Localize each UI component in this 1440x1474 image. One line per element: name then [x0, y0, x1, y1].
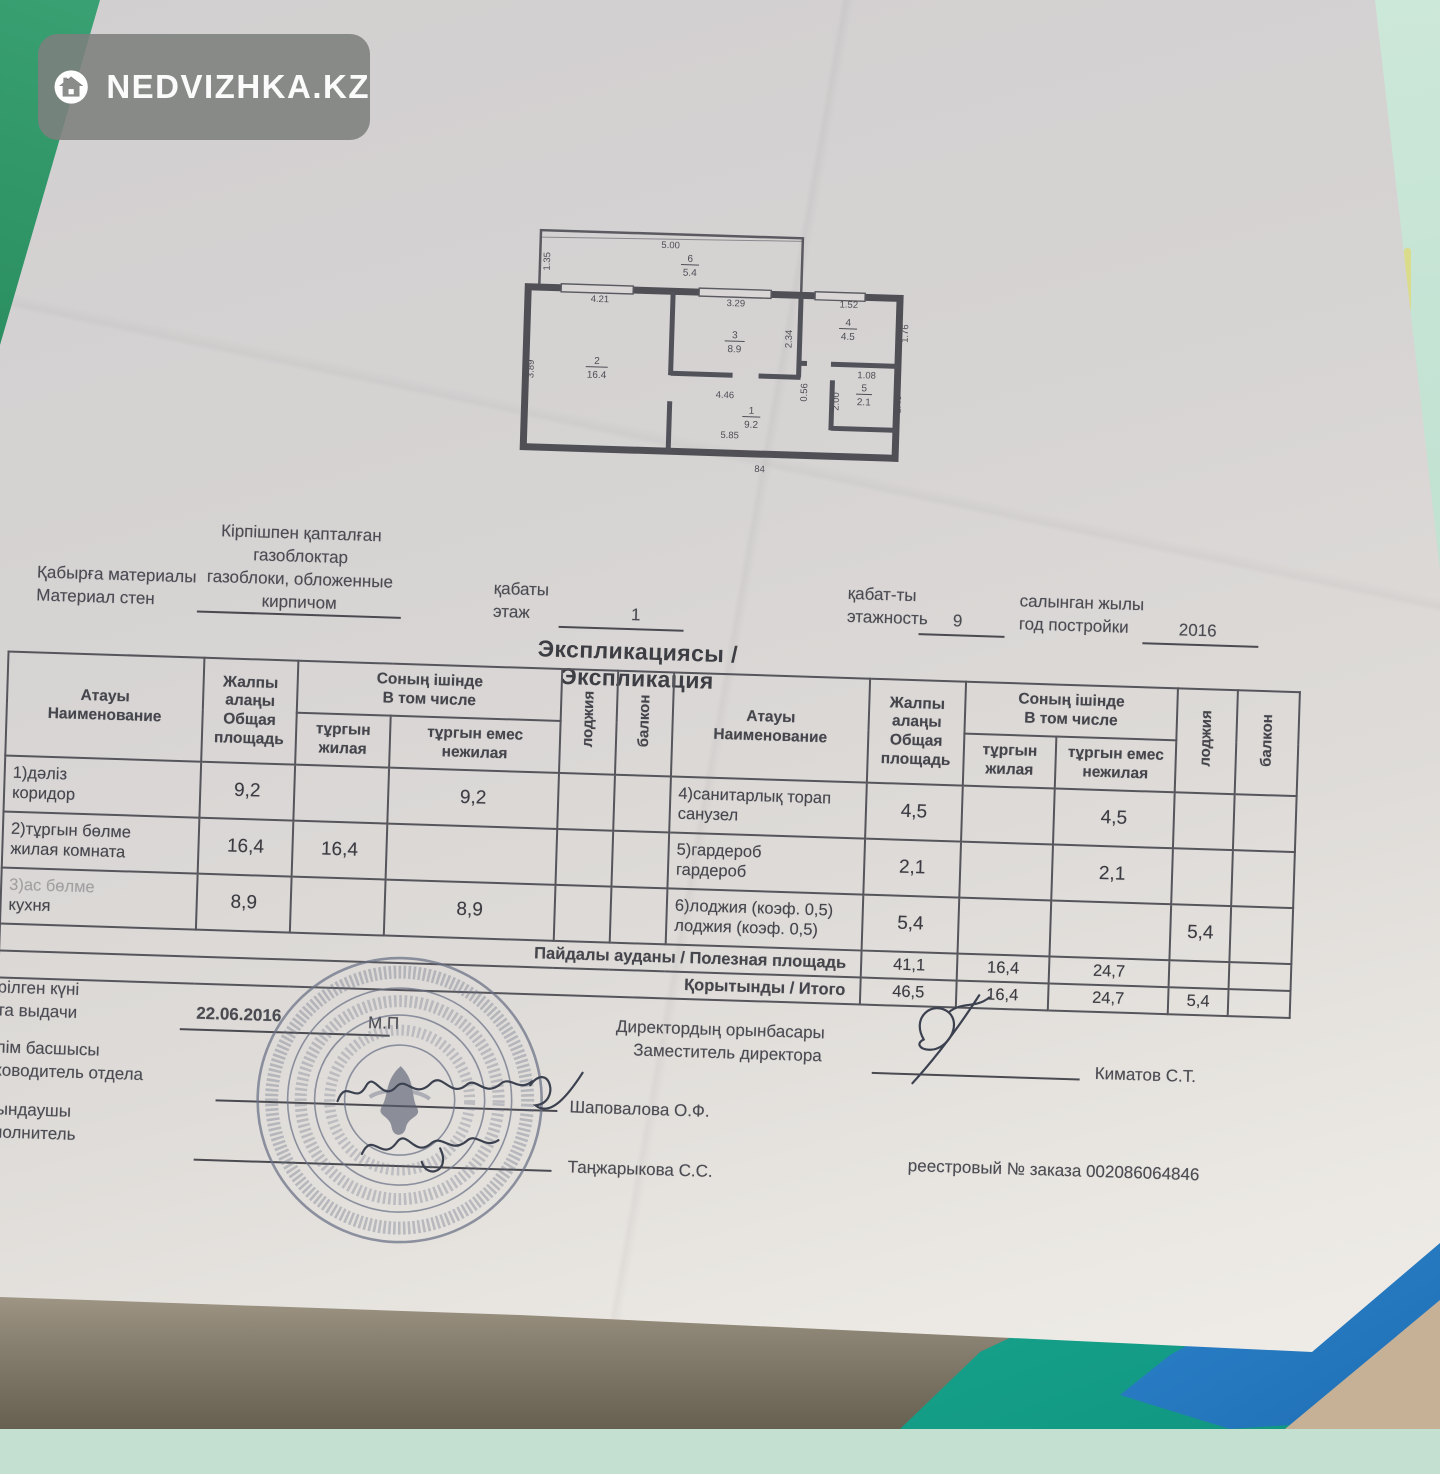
- cell-living: [958, 898, 1052, 957]
- header-living-kk: тұргын: [969, 741, 1052, 762]
- floors-label-ru: этажность: [847, 606, 928, 631]
- dim-200: 2.00: [831, 392, 843, 411]
- dim-room4-depth: 1.76: [900, 324, 912, 343]
- wall-material-value: Кірпішпен қапталған газоблоктар газоблок…: [193, 519, 408, 617]
- room-name-cell: 5)гардероб гардероб: [667, 832, 865, 894]
- executor-label: Орындаушы Исполнитель: [0, 1098, 77, 1147]
- header-loggia: лоджия: [1197, 710, 1217, 767]
- col-header-total-right: Жалпы алаңы Общая площадь: [867, 679, 966, 786]
- executor-label-ru: Исполнитель: [0, 1121, 76, 1147]
- registry-number: реестровый № заказа 002086064846: [907, 1155, 1199, 1187]
- cell-loggia: [557, 773, 615, 831]
- cell-living: [293, 765, 389, 824]
- dim-hall-length: 5.85: [720, 430, 739, 442]
- year-label: салынган жылы год постройки: [1019, 590, 1145, 640]
- dim-door-mark: 84: [754, 464, 765, 475]
- header-balcony: балкон: [635, 694, 655, 747]
- cell-total: 2,1: [863, 839, 961, 898]
- cell-loggia: 5,4: [1169, 904, 1231, 962]
- room2-area: 16.4: [587, 370, 607, 382]
- col-header-living-right: тұргын жилая: [963, 734, 1057, 789]
- floor-label-ru: этаж: [493, 601, 549, 626]
- cell-balcony: [1233, 794, 1297, 852]
- floor-label: қабаты этаж: [493, 578, 550, 626]
- cell-total: 8,9: [196, 874, 292, 933]
- cell-balcony: [613, 775, 671, 833]
- explication-table: Атауы Наименование Жалпы алаңы Общая пло…: [0, 651, 1301, 1019]
- col-header-incl-right: Соның ішінде В том числе: [964, 682, 1178, 741]
- cell-total: 4,5: [865, 783, 963, 842]
- cell-loggia: [1171, 848, 1233, 906]
- cell-living: [961, 786, 1055, 845]
- dim-room3-width: 3.29: [726, 298, 745, 310]
- deputy-label: Директордың орынбасары Заместитель дирек…: [615, 1016, 825, 1068]
- cell-living: 16,4: [957, 954, 1050, 984]
- issue-date-label-kk: Берілген күні: [0, 976, 80, 1002]
- col-header-loggia-right: лоджия: [1175, 688, 1238, 794]
- col-header-loggia-left: лоджия: [559, 669, 618, 775]
- executor-name: Таңжарыкова С.С.: [567, 1156, 713, 1183]
- dim-room2-width: 4.21: [590, 294, 609, 306]
- home-icon: [54, 54, 88, 120]
- room2-number: 2: [594, 356, 600, 367]
- cell-nonliving: [1049, 900, 1171, 960]
- cell-loggia: [1169, 960, 1230, 989]
- executor-signature: [355, 1120, 579, 1189]
- cell-loggia: [1173, 792, 1235, 850]
- cell-total: 16,4: [198, 818, 294, 877]
- cell-living: [959, 842, 1053, 901]
- cell-total: 5,4: [862, 895, 960, 954]
- room-name-cell: 2)тұргын бөлме жилая комната: [2, 812, 200, 874]
- executor-label-kk: Орындаушы: [0, 1098, 77, 1124]
- cell-total: 41,1: [861, 951, 958, 981]
- header-nonliving-kk: тұргын емес: [1061, 744, 1172, 766]
- room-name-cell: 6)лоджия (коэф. 0,5) лоджия (коэф. 0,5): [666, 888, 864, 950]
- cell-balcony: [1231, 850, 1295, 908]
- issue-date-label: Берілген күні Дата выдачи: [0, 976, 80, 1025]
- cell-balcony: [1228, 989, 1291, 1018]
- col-header-nonliving-right: тұргын емес нежилая: [1055, 737, 1177, 793]
- room-name-cell: 4)санитарлық торап санузел: [669, 776, 867, 838]
- cell-loggia: 5,4: [1168, 987, 1229, 1016]
- cell-balcony: [611, 831, 669, 889]
- cell-loggia: [555, 829, 613, 887]
- document-sheet: 5.00 1.35 4.21 3.89 3.29 2.34 1.52 1.76 …: [0, 0, 1440, 1429]
- floor-value: 1: [631, 604, 641, 627]
- floors-underline: [919, 633, 1005, 638]
- floors-value: 9: [953, 610, 963, 633]
- dim-056: 0.56: [799, 383, 811, 402]
- year-label-ru: год постройки: [1019, 613, 1144, 640]
- room5-area: 2.1: [857, 397, 872, 408]
- dim-room4-width: 1.52: [839, 300, 858, 312]
- cell-nonliving: 8,9: [384, 880, 556, 941]
- floors-label: қабат-ты этажность: [847, 583, 929, 631]
- col-header-balcony-right: балкон: [1235, 690, 1300, 796]
- dim-room2-depth: 3.89: [525, 359, 537, 378]
- cell-living: 16,4: [292, 821, 388, 880]
- col-header-balcony-left: балкон: [615, 671, 674, 777]
- room1-area: 9.2: [744, 420, 759, 431]
- cell-balcony: [1229, 906, 1293, 964]
- col-header-name-left: Атауы Наименование: [5, 652, 204, 762]
- room6-number: 6: [687, 254, 693, 265]
- deputy-name: Киматов С.Т.: [1094, 1063, 1196, 1089]
- cell-nonliving: 24,7: [1048, 983, 1169, 1014]
- issue-date-label-ru: Дата выдачи: [0, 999, 79, 1025]
- dimension-labels: 5.00 1.35 4.21 3.89 3.29 2.34 1.52 1.76 …: [523, 236, 914, 480]
- floors-label-kk: қабат-ты: [847, 583, 928, 608]
- floor-underline: [559, 626, 684, 632]
- col-header-name-right: Атауы Наименование: [671, 673, 870, 783]
- cell-nonliving: 9,2: [387, 768, 559, 829]
- cell-nonliving: 24,7: [1049, 956, 1170, 987]
- header-total-ru: Общая площадь: [207, 710, 292, 750]
- room3-area: 8.9: [727, 344, 742, 355]
- header-loggia: лоджия: [579, 691, 599, 748]
- year-value: 2016: [1178, 619, 1217, 643]
- cell-nonliving: [386, 824, 558, 885]
- wall-material-label: Қабырға материалы Материал стен: [36, 561, 197, 612]
- brand-name: NEDVIZHKA.KZ: [106, 68, 370, 106]
- room-name-cell: 1)дәліз коридор: [4, 756, 202, 818]
- header-total-ru: Общая площадь: [872, 731, 959, 771]
- document-content: 5.00 1.35 4.21 3.89 3.29 2.34 1.52 1.76 …: [0, 0, 1439, 1474]
- dept-head-label-ru: Руководитель отдела: [0, 1059, 143, 1087]
- room6-area: 5.4: [683, 268, 698, 279]
- floor-plan: 5.00 1.35 4.21 3.89 3.29 2.34 1.52 1.76 …: [497, 218, 929, 483]
- header-total-kk: Жалпы алаңы: [208, 673, 293, 713]
- cell-balcony: [1229, 962, 1292, 991]
- header-total-kk: Жалпы алаңы: [873, 694, 960, 734]
- room4-number: 4: [845, 318, 851, 329]
- header-nonliving-ru: нежилая: [394, 742, 555, 766]
- room4-area: 4.5: [841, 332, 856, 343]
- cell-nonliving: 2,1: [1051, 844, 1173, 904]
- col-header-nonliving-left: тұргын емес нежилая: [389, 716, 561, 773]
- dim-108: 1.08: [857, 370, 876, 382]
- cell-living: [290, 877, 386, 936]
- col-header-incl-left: Соның ішінде В том числе: [297, 661, 563, 721]
- cell-total: 9,2: [199, 762, 295, 821]
- deputy-signature: [884, 990, 1029, 1094]
- col-header-living-left: тұргын жилая: [295, 713, 391, 768]
- room5-number: 5: [861, 383, 867, 394]
- header-balcony: балкон: [1258, 714, 1278, 767]
- dept-head-label: Бөлім басшысы Руководитель отдела: [0, 1036, 144, 1087]
- cell-nonliving: 4,5: [1053, 789, 1175, 849]
- brand-watermark: NEDVIZHKA.KZ: [38, 34, 370, 140]
- header-living-ru: жилая: [300, 739, 385, 760]
- dim-hall-width: 4.46: [716, 390, 735, 402]
- cell-loggia: [554, 885, 612, 943]
- dim-loggia-width: 5.00: [661, 240, 680, 252]
- year-underline: [1142, 642, 1258, 648]
- dim-149: 1.49: [892, 395, 904, 414]
- dim-room3-depth: 2.34: [783, 330, 795, 349]
- room3-number: 3: [732, 330, 738, 341]
- dim-loggia-depth: 1.35: [542, 252, 554, 271]
- cell-balcony: [610, 887, 668, 945]
- header-living-ru: жилая: [968, 760, 1051, 781]
- col-header-total-left: Жалпы алаңы Общая площадь: [201, 658, 298, 765]
- header-nonliving-ru: нежилая: [1060, 763, 1171, 785]
- room-name-cell: 3)ас бөлме кухня: [0, 867, 198, 929]
- floor-label-kk: қабаты: [493, 578, 549, 603]
- room1-number: 1: [748, 406, 754, 417]
